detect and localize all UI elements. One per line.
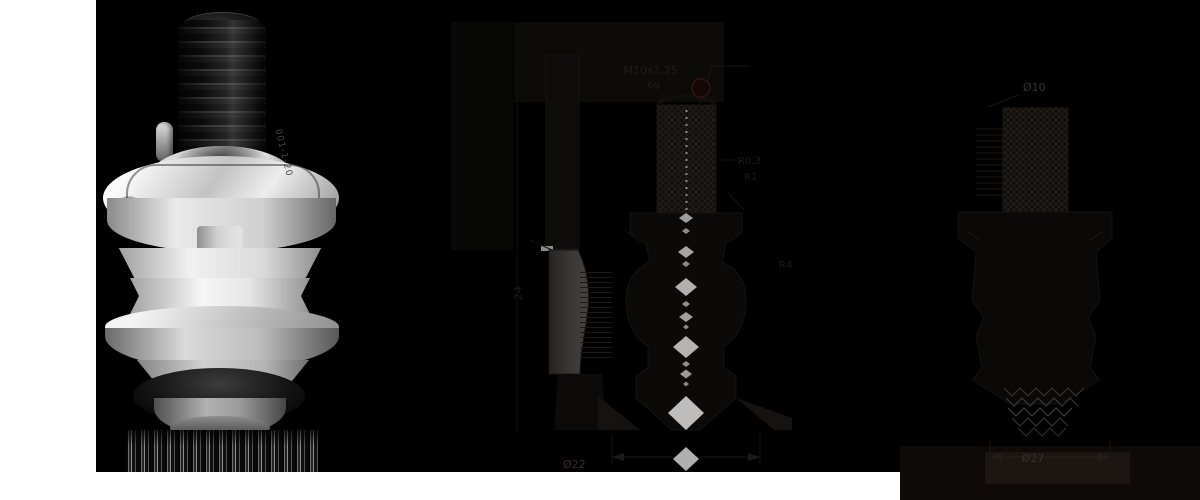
drawing-right-view: Ø10 Ø27: [958, 81, 1112, 465]
outer-dia-label: Ø27: [1022, 452, 1045, 465]
section-hatching: [580, 270, 612, 358]
product-sheet: 001-1-20 24: [0, 0, 1200, 500]
stud-dia-label: Ø10: [1023, 81, 1046, 94]
radius-label-3: R4: [779, 260, 792, 271]
page-margin-left: [0, 0, 96, 500]
drawing-left-view: 24: [512, 55, 612, 432]
product-render: 001-1-20: [96, 0, 456, 472]
upper-cone: [110, 248, 330, 282]
page-margin-bottom: [0, 472, 900, 500]
radius-label-2: R1: [744, 172, 757, 183]
radius-label-1: R0,3: [738, 156, 761, 167]
center-width-dim: Ø22: [563, 458, 586, 471]
reflection-fade: [126, 430, 318, 446]
thread-spec-label: M10x1,25: [624, 64, 679, 77]
dimension-drawing: 24 Ø22 M10x1,25 6g R0,3 R: [420, 0, 1200, 500]
thread-fit-label: 6g: [647, 80, 660, 91]
spool-outline-rear: [958, 212, 1112, 404]
thread-knurl: [1003, 108, 1068, 212]
thread-ridges-side: [976, 124, 1003, 198]
callout-balloon: [692, 79, 710, 97]
left-height-dim: 24: [512, 286, 525, 300]
